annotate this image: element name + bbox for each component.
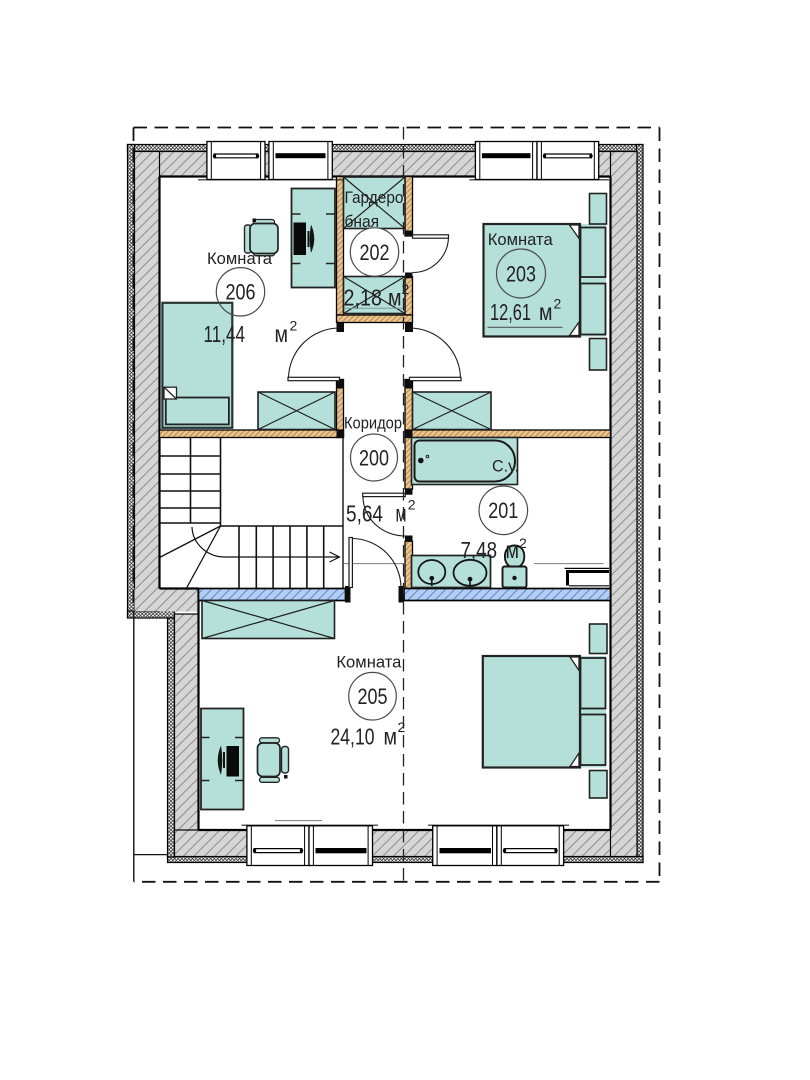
svg-text:11,44: 11,44	[204, 321, 246, 347]
svg-text:12,61: 12,61	[490, 299, 531, 325]
svg-text:С.у.: С.у.	[492, 457, 519, 476]
svg-text:Комната: Комната	[207, 249, 273, 268]
svg-text:м: м	[388, 285, 402, 311]
svg-text:Комната: Комната	[336, 653, 402, 672]
svg-text:2: 2	[398, 719, 406, 735]
svg-text:м: м	[506, 537, 520, 563]
svg-text:206: 206	[226, 280, 256, 305]
svg-text:5,64: 5,64	[346, 501, 383, 527]
svg-text:203: 203	[506, 261, 536, 286]
svg-text:2: 2	[408, 497, 416, 513]
svg-text:2: 2	[519, 535, 527, 551]
svg-text:м: м	[396, 501, 407, 527]
svg-text:м: м	[384, 724, 398, 750]
svg-text:201: 201	[488, 498, 518, 523]
svg-text:м: м	[275, 321, 289, 347]
svg-text:Гардеро: Гардеро	[345, 188, 404, 207]
svg-text:205: 205	[358, 684, 388, 709]
svg-text:м: м	[539, 299, 553, 325]
svg-text:200: 200	[359, 445, 389, 470]
svg-text:Коридор: Коридор	[344, 413, 402, 432]
svg-text:24,10: 24,10	[331, 724, 375, 750]
svg-text:Комната: Комната	[488, 230, 554, 249]
svg-text:2: 2	[402, 281, 410, 297]
svg-text:2: 2	[290, 318, 298, 334]
svg-text:2: 2	[554, 296, 562, 312]
svg-text:2,18: 2,18	[344, 285, 383, 311]
svg-text:202: 202	[360, 240, 390, 265]
svg-text:7,48: 7,48	[461, 537, 498, 563]
